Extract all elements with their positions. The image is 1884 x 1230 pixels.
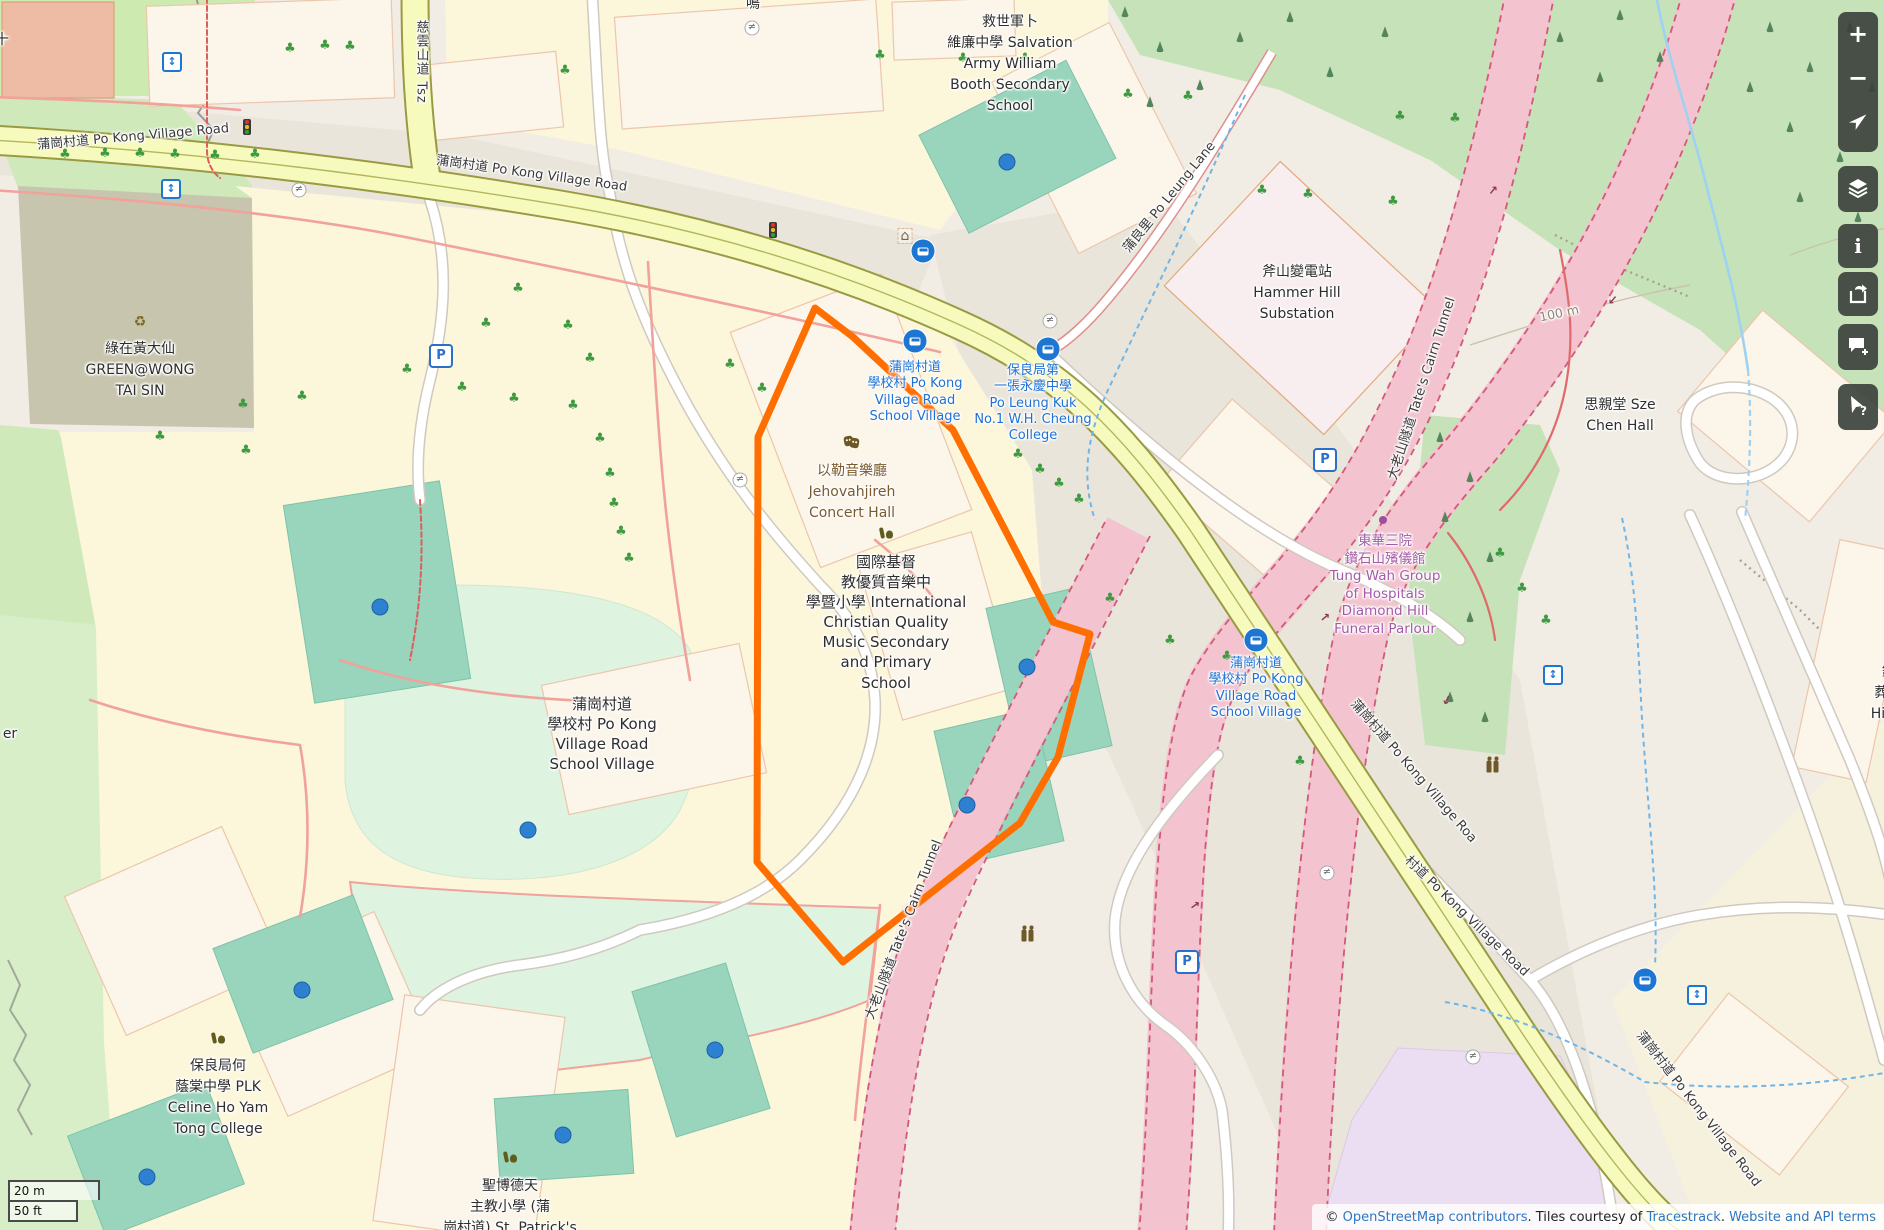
deciduous-tree-icon: ♣ <box>1256 183 1268 198</box>
share-control <box>1838 272 1878 316</box>
international-christian-quality-music-school-label: 國際基督教優質音樂中學暨小學 InternationalChristian Qu… <box>806 552 967 693</box>
share-button[interactable] <box>1838 272 1878 316</box>
green-wong-tai-sin-label-recycle-icon: ♻ <box>134 314 147 330</box>
po-leung-kuk-college-bus-stop-label: 保良局第一張永慶中學Po Leung KukNo.1 W.H. CheungCo… <box>974 363 1091 444</box>
deciduous-tree-icon: ♣ <box>240 443 252 458</box>
green-wong-tai-sin-label: 綠在黃大仙GREEN@WONGTAI SIN <box>86 339 195 402</box>
attribution-copyright: © <box>1326 1210 1343 1225</box>
deciduous-tree-icon: ♣ <box>1302 187 1314 202</box>
plk-celine-ho-yam-tong-college-label: 保良局何蔭棠中學 PLKCeline Ho YamTong College <box>168 1056 269 1140</box>
deciduous-tree-icon: ♣ <box>1164 633 1176 648</box>
deciduous-tree-icon: ♣ <box>1104 591 1116 606</box>
scale-bar: 20 m 50 ft <box>8 1180 100 1222</box>
deciduous-tree-icon: ♣ <box>608 496 620 511</box>
elevator-icon: ↕ <box>161 179 181 199</box>
jehovahjireh-concert-hall-label-theatre-masks-icon <box>844 436 860 448</box>
deciduous-tree-icon: ♣ <box>1494 546 1506 561</box>
deciduous-tree-icon: ♣ <box>623 551 635 566</box>
deciduous-tree-icon: ♣ <box>344 39 356 54</box>
water-feature-dot <box>555 1127 572 1144</box>
deciduous-tree-icon: ♣ <box>1012 447 1024 462</box>
gate-icon: ≠ <box>745 21 760 36</box>
deciduous-tree-icon: ♣ <box>209 148 221 163</box>
gate-icon: ≠ <box>292 183 307 198</box>
attribution-bar: © OpenStreetMap contributors. Tiles cour… <box>1312 1204 1884 1230</box>
salvation-army-school-label: 救世軍卜維廉中學 SalvationArmy WilliamBooth Seco… <box>947 12 1073 117</box>
scale-imperial: 50 ft <box>8 1200 78 1222</box>
deciduous-tree-icon: ♣ <box>567 398 579 413</box>
share-icon <box>1847 283 1869 305</box>
deciduous-tree-icon: ♣ <box>512 281 524 296</box>
tracestrack-link[interactable]: Tracestrack <box>1646 1210 1720 1225</box>
deciduous-tree-icon: ♣ <box>1540 613 1552 628</box>
deciduous-tree-icon: ♣ <box>874 48 886 63</box>
deciduous-tree-icon: ♣ <box>456 380 468 395</box>
traffic-light-icon <box>769 222 777 238</box>
conifer-tree-icon <box>1441 511 1449 522</box>
deciduous-tree-icon: ♣ <box>1387 194 1399 209</box>
partial-label-top-street: 鳴 <box>746 0 760 15</box>
deciduous-tree-icon: ♣ <box>1394 109 1406 124</box>
conifer-tree-icon <box>1236 31 1244 42</box>
zoom-out-button[interactable]: − <box>1838 56 1878 100</box>
water-feature-dot <box>959 797 976 814</box>
deciduous-tree-icon: ♣ <box>584 351 596 366</box>
conifer-tree-icon <box>1836 151 1844 162</box>
deciduous-tree-icon: ♣ <box>296 389 308 404</box>
international-christian-quality-music-school-label-school-icon <box>879 528 893 539</box>
deciduous-tree-icon: ♣ <box>594 431 606 446</box>
conifer-tree-icon <box>1656 51 1664 62</box>
jehovahjireh-concert-hall-label: 以勒音樂廳JehovahjirehConcert Hall <box>809 461 896 524</box>
gate-icon: ≠ <box>1320 866 1335 881</box>
conifer-tree-icon <box>1746 81 1754 92</box>
conifer-tree-icon <box>1466 611 1474 622</box>
plus-icon: + <box>1848 20 1868 48</box>
parking-icon: P <box>429 344 453 368</box>
conifer-tree-icon <box>1196 79 1204 90</box>
deciduous-tree-icon: ♣ <box>284 41 296 56</box>
hammer-hill-substation-label: 斧山變電站Hammer HillSubstation <box>1253 262 1340 325</box>
conifer-tree-icon <box>1766 21 1774 32</box>
deciduous-tree-icon: ♣ <box>1073 492 1085 507</box>
water-feature-dot <box>372 599 389 616</box>
partial-label-er: er <box>3 724 17 745</box>
shelter-icon: ⌂ <box>898 228 913 244</box>
conifer-tree-icon <box>1806 61 1814 72</box>
tsz-wan-shan-road-label: 慈雲山道 Tsz <box>412 20 431 104</box>
deciduous-tree-icon: ♣ <box>724 357 736 372</box>
conifer-tree-icon <box>1146 96 1154 107</box>
svg-text:?: ? <box>1860 404 1867 418</box>
conifer-tree-icon <box>1596 71 1604 82</box>
map-canvas[interactable]: 救世軍卜維廉中學 SalvationArmy WilliamBooth Seco… <box>0 0 1884 1230</box>
po-kong-village-road-school-village-label: 蒲崗村道學校村 Po KongVillage RoadSchool Villag… <box>547 694 657 774</box>
deciduous-tree-icon: ♣ <box>99 146 111 161</box>
deciduous-tree-icon: ♣ <box>319 38 331 53</box>
note-control <box>1838 324 1878 370</box>
conifer-tree-icon <box>1796 191 1804 202</box>
deciduous-tree-icon: ♣ <box>615 524 627 539</box>
zoom-locate-control-group: + − <box>1838 12 1878 152</box>
conifer-tree-icon <box>1481 711 1489 722</box>
bus-icon <box>911 239 936 264</box>
bus-icon <box>903 329 928 354</box>
zoom-in-button[interactable]: + <box>1838 12 1878 56</box>
water-feature-dot <box>294 982 311 999</box>
conifer-tree-icon <box>1121 6 1129 17</box>
conifer-tree-icon <box>1486 551 1494 562</box>
school-village-bus-stop-label-west: 蒲崗村道學校村 Po KongVillage RoadSchool Villag… <box>868 360 963 425</box>
bus-icon <box>1633 968 1658 993</box>
query-features-button[interactable]: ? <box>1838 384 1878 428</box>
toilets-icon <box>1022 929 1039 942</box>
deciduous-tree-icon: ♣ <box>1182 89 1194 104</box>
attribution-middle: . Tiles courtesy of <box>1528 1210 1647 1225</box>
conifer-tree-icon <box>1556 31 1564 42</box>
deciduous-tree-icon: ♣ <box>169 147 181 162</box>
traffic-light-icon <box>243 119 251 135</box>
parking-icon: P <box>1313 448 1337 472</box>
purple-dot-icon <box>1379 516 1387 524</box>
school-village-bus-stop-label-east: 蒲崗村道學校村 Po KongVillage RoadSchool Villag… <box>1209 656 1304 721</box>
add-note-button[interactable] <box>1838 324 1878 368</box>
conifer-tree-icon <box>1286 11 1294 22</box>
plk-celine-ho-yam-tong-college-label-school-icon <box>211 1033 225 1044</box>
gate-icon: ≠ <box>1043 314 1058 329</box>
deciduous-tree-icon: ♣ <box>508 391 520 406</box>
deciduous-tree-icon: ♣ <box>1516 581 1528 596</box>
layers-control <box>1838 166 1878 212</box>
water-feature-dot <box>999 154 1016 171</box>
query-control: ? <box>1838 384 1878 430</box>
conifer-tree-icon <box>1466 471 1474 482</box>
note-bubble-icon <box>1847 335 1869 357</box>
deciduous-tree-icon: ♣ <box>756 381 768 396</box>
deciduous-tree-icon: ♣ <box>154 429 166 444</box>
funeral-parlour-label: 東華三院鑽石山殯儀館Tung Wah Groupof HospitalsDiam… <box>1330 533 1441 638</box>
deciduous-tree-icon: ♣ <box>1122 87 1134 102</box>
deciduous-tree-icon: ♣ <box>249 147 261 162</box>
st-patricks-school-label-school-icon <box>503 1152 517 1163</box>
parking-icon: P <box>1175 950 1199 974</box>
elevator-icon: ↕ <box>1543 665 1563 685</box>
minus-icon: − <box>1848 64 1868 92</box>
deciduous-tree-icon: ♣ <box>480 316 492 331</box>
conifer-tree-icon <box>1156 41 1164 52</box>
conifer-tree-icon <box>1786 121 1794 132</box>
bus-icon <box>1244 628 1269 653</box>
deciduous-tree-icon: ♣ <box>1449 111 1461 126</box>
gate-icon: ≠ <box>1466 1050 1481 1065</box>
water-feature-dot <box>520 822 537 839</box>
locate-arrow-icon <box>1848 112 1868 132</box>
deciduous-tree-icon: ♣ <box>401 362 413 377</box>
partial-label-top-left: 十 <box>0 30 9 51</box>
toilets-icon <box>1487 760 1504 773</box>
deciduous-tree-icon: ♣ <box>1294 754 1306 769</box>
deciduous-tree-icon: ♣ <box>604 466 616 481</box>
query-cursor-icon: ? <box>1846 394 1870 418</box>
conifer-tree-icon <box>1854 211 1862 222</box>
deciduous-tree-icon: ♣ <box>562 318 574 333</box>
sze-chen-hall-label: 思親堂 SzeChen Hall <box>1584 395 1655 437</box>
gate-icon: ≠ <box>733 473 748 488</box>
terms-link[interactable]: Website and API terms <box>1729 1210 1876 1225</box>
st-patricks-school-label: 聖博德天主教小學 (蒲崗村道) St. Patrick's <box>443 1176 577 1230</box>
deciduous-tree-icon: ♣ <box>1034 462 1046 477</box>
elevator-icon: ↕ <box>1687 985 1707 1005</box>
conifer-tree-icon <box>1436 431 1444 442</box>
deciduous-tree-icon: ♣ <box>559 63 571 78</box>
water-feature-dot <box>707 1042 724 1059</box>
deciduous-tree-icon: ♣ <box>134 146 146 161</box>
map-legend-button[interactable]: i <box>1838 224 1878 268</box>
layers-button[interactable] <box>1838 166 1878 210</box>
legend-control: i <box>1838 224 1878 268</box>
deciduous-tree-icon: ♣ <box>1053 476 1065 491</box>
bus-icon <box>1036 337 1061 362</box>
scale-metric: 20 m <box>8 1180 100 1200</box>
diamond-hill-crematorium-partial-label: 鑽石葬場 DHill Cre <box>1871 662 1884 725</box>
water-feature-dot <box>139 1169 156 1186</box>
deciduous-tree-icon: ♣ <box>237 397 249 412</box>
conifer-tree-icon <box>1326 66 1334 77</box>
locate-button[interactable] <box>1838 100 1878 144</box>
attribution-separator: . <box>1721 1210 1729 1225</box>
osm-contributors-link[interactable]: OpenStreetMap contributors <box>1343 1210 1528 1225</box>
elevator-icon: ↕ <box>162 52 182 72</box>
info-icon: i <box>1854 234 1862 258</box>
conifer-tree-icon <box>1616 9 1624 20</box>
water-feature-dot <box>1019 659 1036 676</box>
conifer-tree-icon <box>1381 26 1389 37</box>
layers-icon <box>1847 177 1869 199</box>
